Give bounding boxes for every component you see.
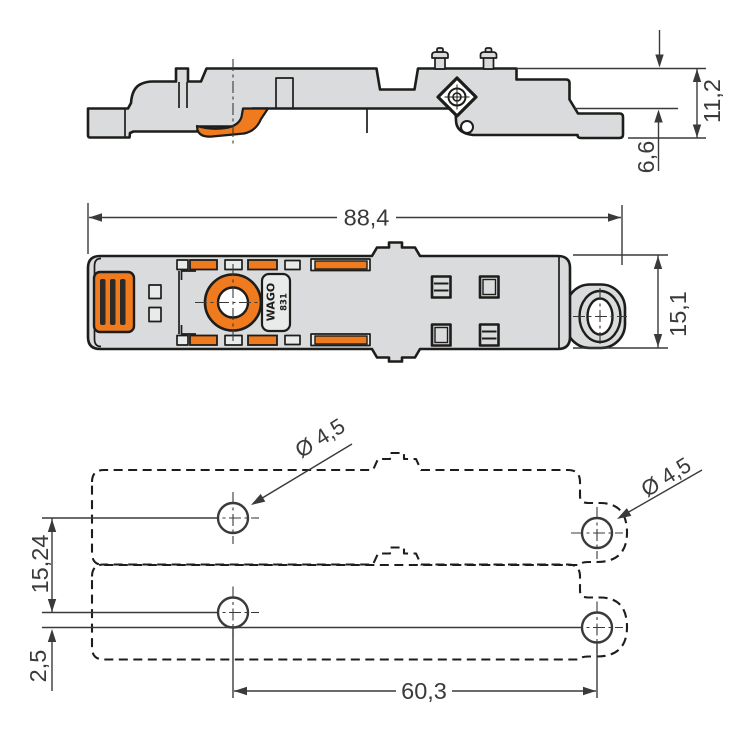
dimension-width-label: 15,1: [665, 291, 691, 337]
dimension-offset-label: 2,5: [25, 650, 51, 683]
locator-pin: [432, 48, 448, 69]
contact-window: [432, 277, 451, 298]
drawing-canvas: 11,2 6,6: [0, 0, 733, 747]
side-window: [149, 308, 161, 322]
release-latch: [94, 272, 134, 332]
vertical-pitch-dimension: 15,24: [27, 519, 56, 613]
dimension-lower-height-label: 6,6: [633, 141, 659, 174]
marker-bars-bottom: [177, 334, 370, 346]
horizontal-pitch-dimension: 60,3: [233, 628, 597, 704]
marker-bars-top: [177, 259, 370, 271]
top-view: WAGO 831: [88, 203, 691, 362]
series-number: 831: [280, 293, 290, 311]
drill-outline-upper: [92, 453, 627, 565]
hole-diameter-label: Ø 4,5: [291, 413, 350, 463]
dimension-horizontal-pitch-label: 60,3: [401, 678, 447, 704]
hole-diameter-label: Ø 4,5: [637, 452, 696, 502]
drilling-plan: 15,24 2,5 60,3 Ø 4,5 Ø 4,5: [25, 413, 702, 704]
side-profile-body: [88, 69, 623, 139]
dimension-vertical-pitch-label: 15,24: [27, 535, 53, 594]
mounting-hole: [571, 507, 623, 559]
side-window: [149, 285, 161, 299]
wago-logo: WAGO: [265, 283, 278, 322]
contact-window: [480, 277, 499, 298]
latch-pivot-hole: [461, 121, 473, 133]
wago-label-plate: WAGO 831: [262, 274, 290, 331]
locator-pin: [481, 48, 497, 69]
diameter-callout-right: Ø 4,5: [615, 452, 702, 523]
dimension-total-height-label: 11,2: [699, 79, 725, 123]
dimension-length-label: 88,4: [344, 205, 390, 231]
side-view: 11,2 6,6: [88, 30, 725, 173]
offset-dimension: 2,5: [25, 629, 56, 691]
contact-window: [432, 325, 451, 346]
technical-drawing-page: 11,2 6,6: [0, 0, 733, 747]
contact-window: [480, 325, 499, 346]
diameter-callout-left: Ø 4,5: [249, 413, 352, 509]
